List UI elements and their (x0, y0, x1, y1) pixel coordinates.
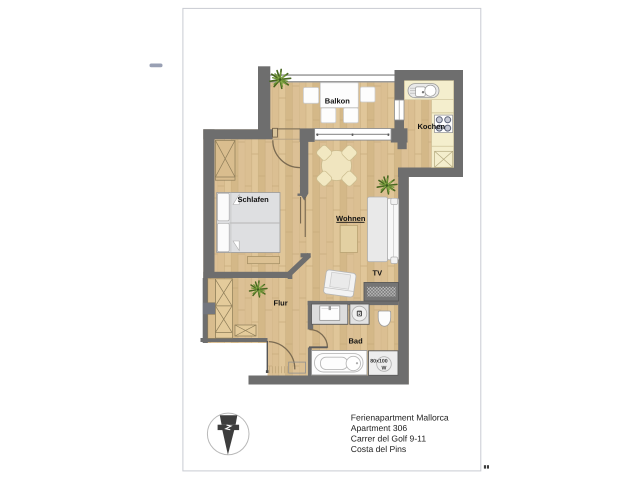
svg-text:W: W (382, 365, 387, 371)
svg-text:TV: TV (373, 269, 383, 278)
svg-text:Schlafen: Schlafen (238, 195, 270, 204)
svg-text:Apartment 306: Apartment 306 (351, 423, 408, 433)
svg-text:Flur: Flur (274, 299, 288, 308)
svg-text:Bad: Bad (349, 336, 364, 345)
svg-text:B: B (358, 312, 362, 318)
svg-text:Ferienapartment Mallorca: Ferienapartment Mallorca (351, 413, 449, 423)
svg-text:Kochen: Kochen (418, 122, 446, 131)
svg-text:Costa del Pins: Costa del Pins (351, 444, 406, 454)
svg-text:Wohnen: Wohnen (336, 214, 366, 223)
svg-text:Carrer del Golf 9-11: Carrer del Golf 9-11 (351, 434, 427, 444)
svg-text:80x100: 80x100 (370, 358, 387, 364)
svg-text:Balkon: Balkon (325, 96, 350, 105)
